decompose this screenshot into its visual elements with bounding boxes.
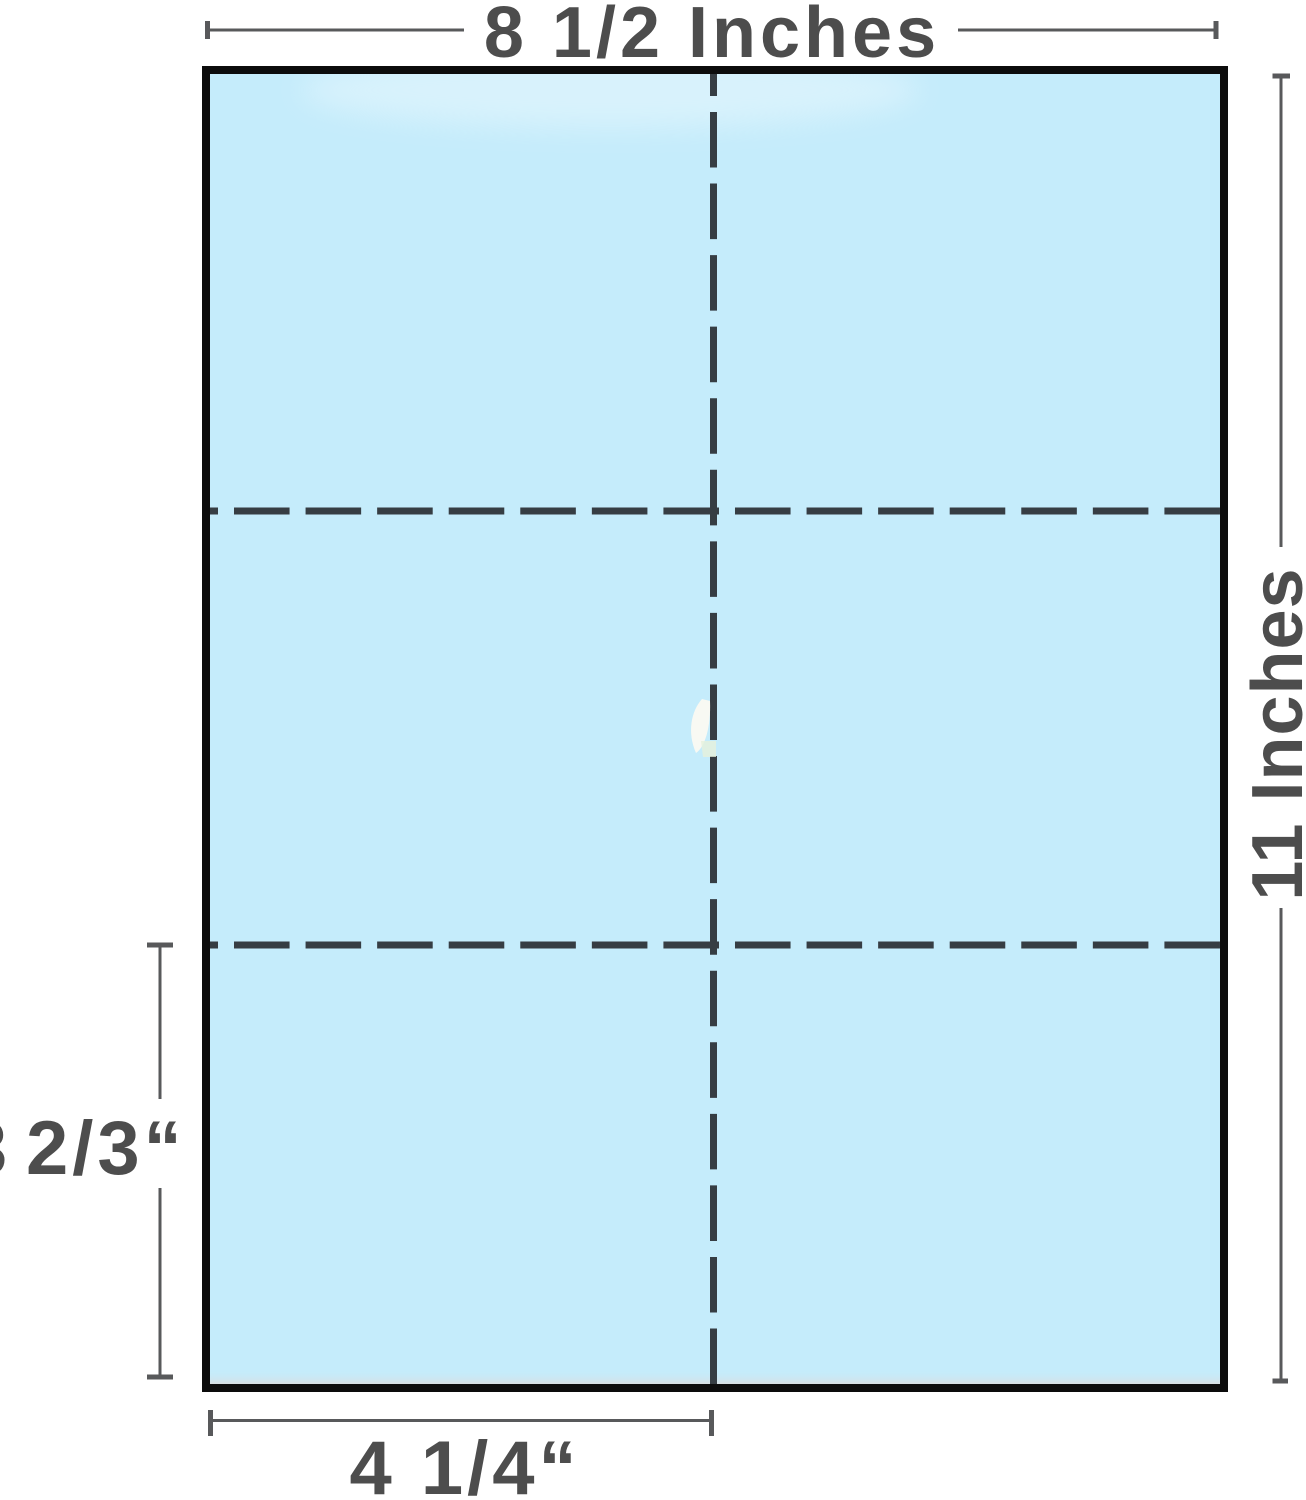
svg-text:2/3“: 2/3“: [26, 1106, 186, 1191]
svg-text:3: 3: [0, 1106, 7, 1191]
svg-text:8 1/2 Inches: 8 1/2 Inches: [484, 0, 940, 73]
svg-text:4 1/4“: 4 1/4“: [349, 1426, 580, 1500]
svg-text:11 Inches: 11 Inches: [1238, 567, 1306, 900]
